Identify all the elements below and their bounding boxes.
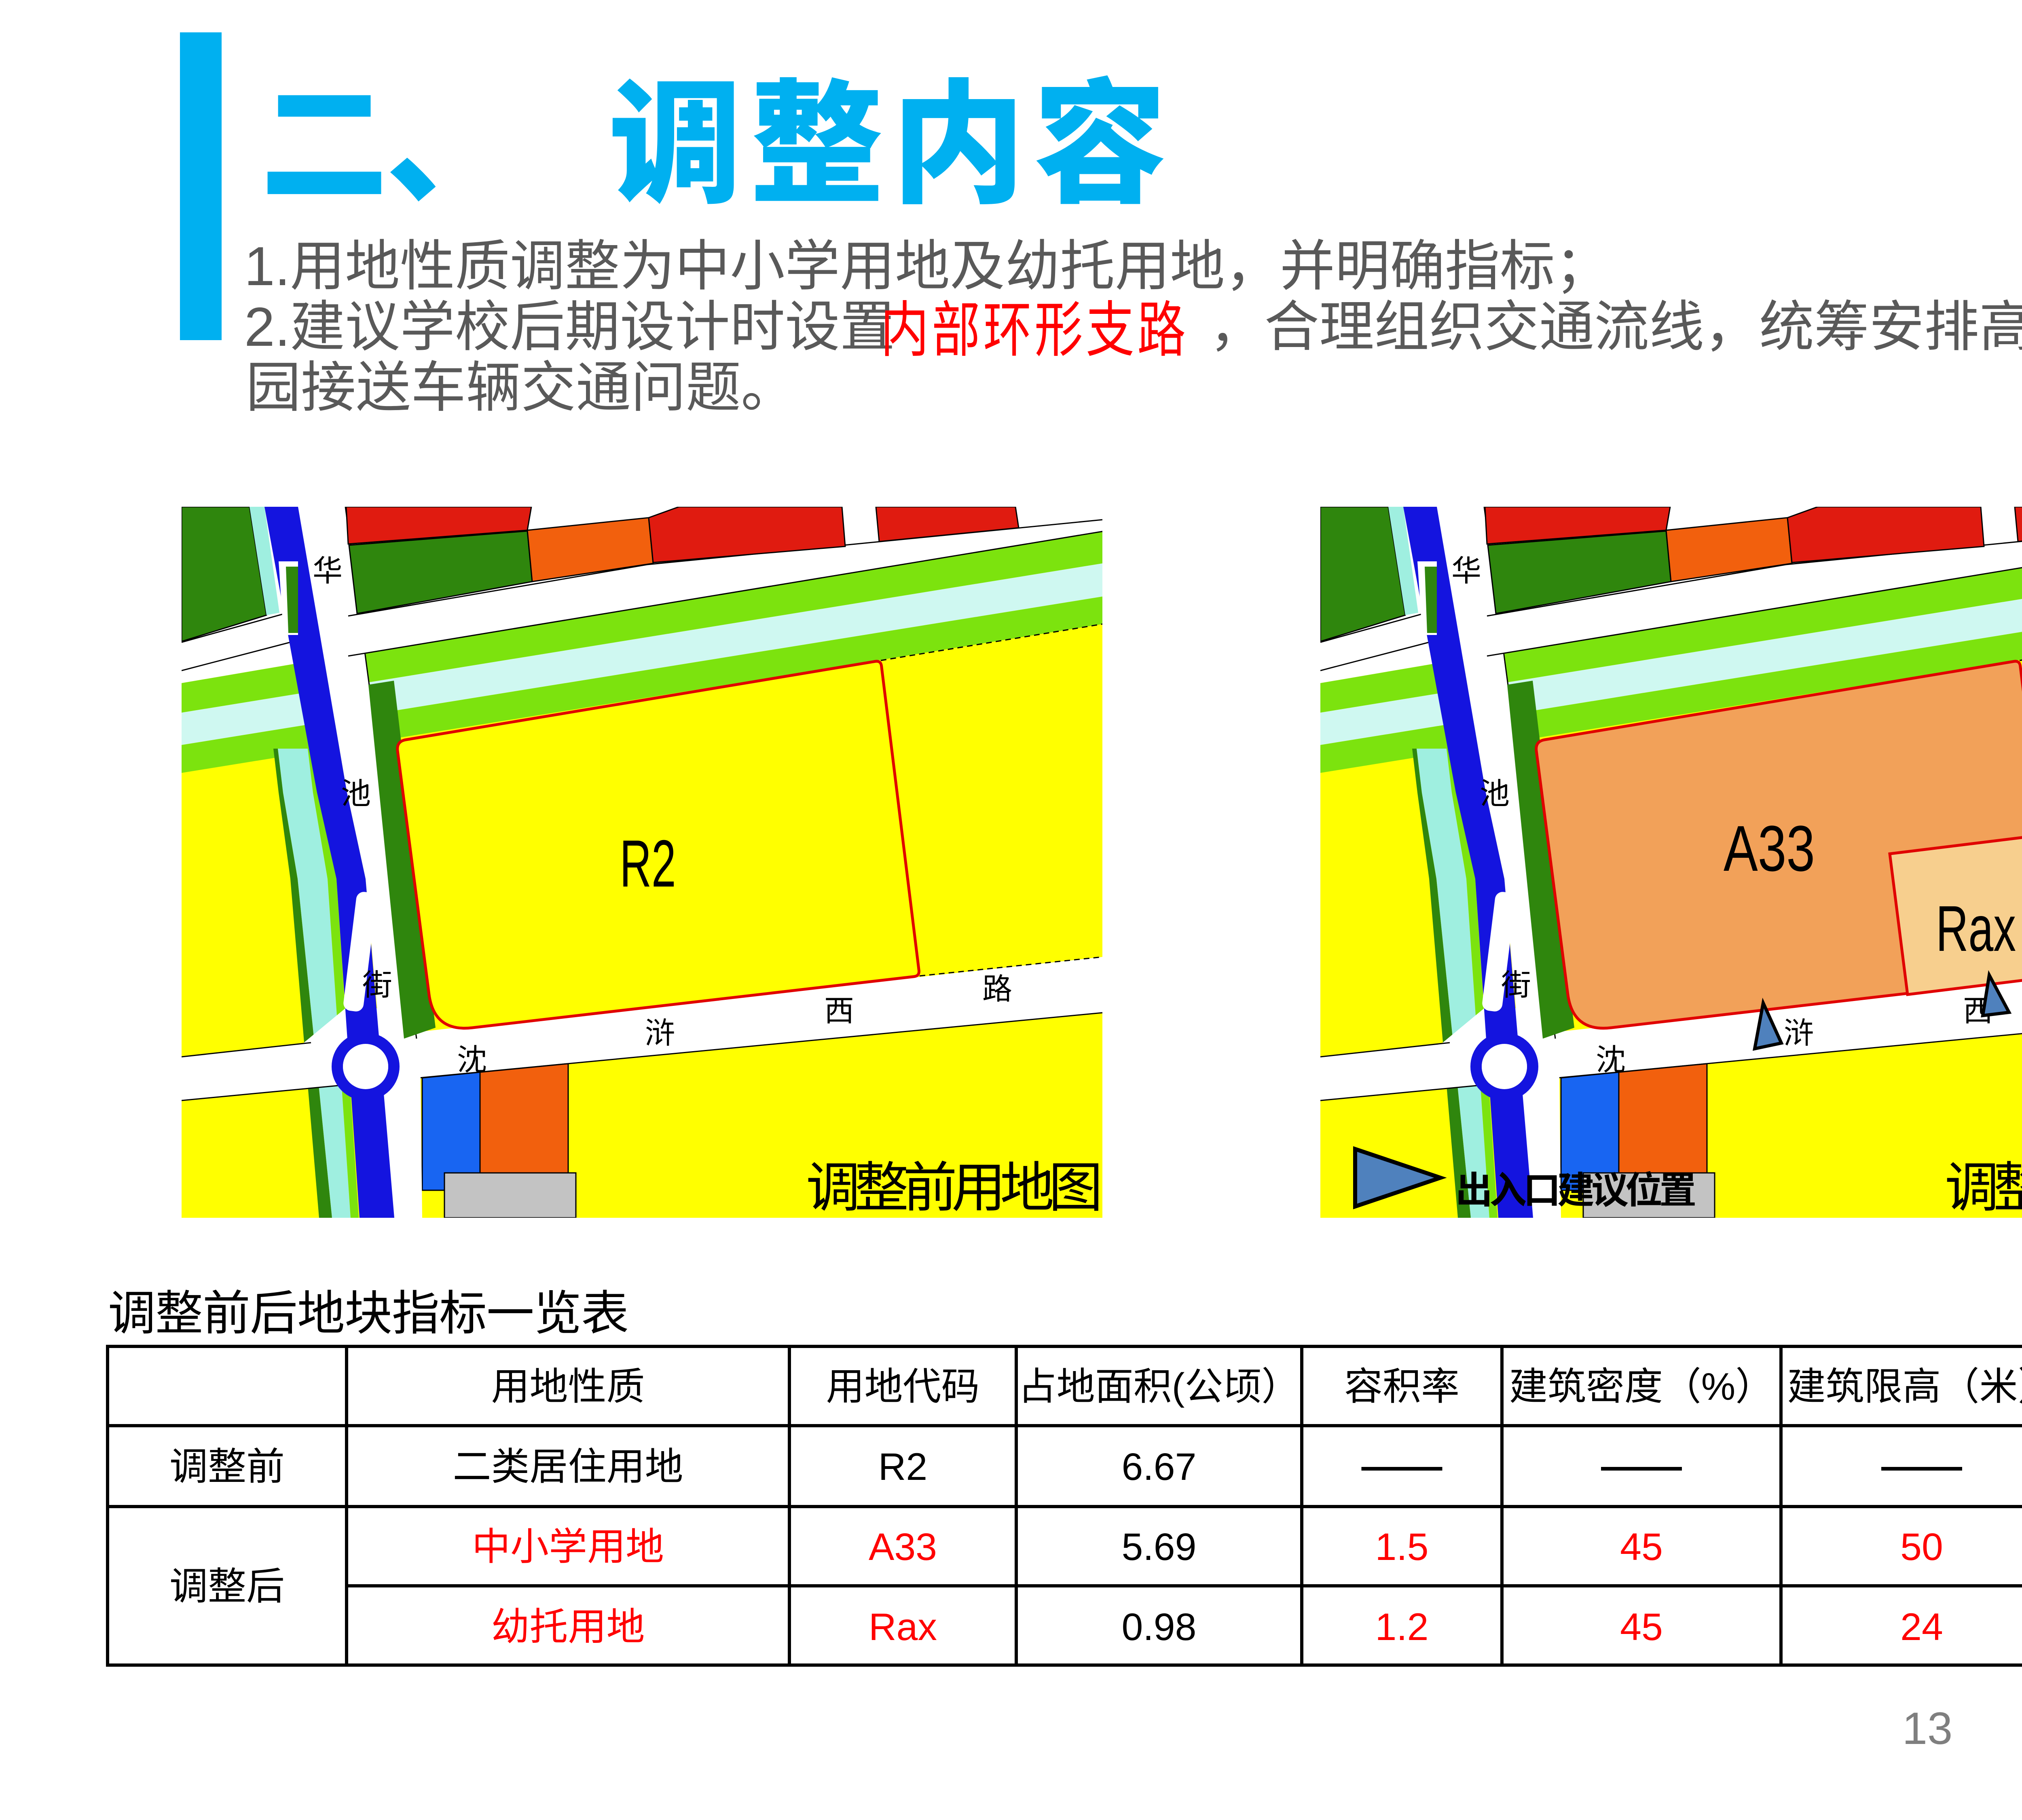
svg-text:R2: R2 <box>620 826 676 901</box>
svg-text:1.: 1. <box>244 235 290 297</box>
svg-text:Rax: Rax <box>869 1606 937 1649</box>
svg-text:1.2: 1.2 <box>1375 1606 1428 1649</box>
svg-text:A33: A33 <box>1724 812 1815 885</box>
svg-text:6.67: 6.67 <box>1122 1445 1197 1488</box>
svg-text:(: ( <box>1172 1365 1185 1408</box>
svg-text:45: 45 <box>1620 1606 1663 1649</box>
svg-text:5.69: 5.69 <box>1122 1526 1197 1568</box>
svg-text:50: 50 <box>1900 1526 1943 1568</box>
svg-text:45: 45 <box>1620 1526 1663 1568</box>
svg-text:13: 13 <box>1902 1703 1953 1754</box>
svg-text:0.98: 0.98 <box>1122 1606 1197 1649</box>
svg-text:1.5: 1.5 <box>1375 1526 1428 1568</box>
svg-text:Rax: Rax <box>1936 892 2016 965</box>
svg-text:R2: R2 <box>878 1445 927 1488</box>
svg-text:%: % <box>1701 1365 1735 1408</box>
svg-text:2.: 2. <box>244 296 290 358</box>
svg-text:A33: A33 <box>869 1526 937 1568</box>
svg-text:24: 24 <box>1900 1606 1943 1649</box>
